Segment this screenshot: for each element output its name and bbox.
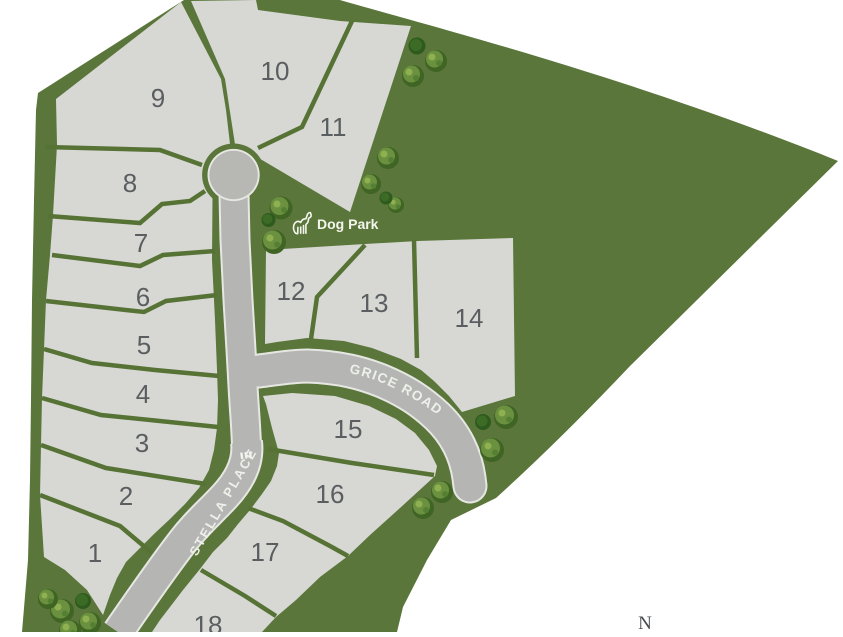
svg-text:11: 11 — [320, 112, 347, 142]
svg-text:8: 8 — [123, 168, 137, 198]
svg-text:6: 6 — [136, 282, 150, 312]
svg-text:5: 5 — [137, 330, 151, 360]
svg-text:15: 15 — [334, 414, 363, 444]
svg-text:7: 7 — [134, 228, 148, 258]
svg-text:Dog Park: Dog Park — [317, 216, 379, 232]
svg-text:13: 13 — [360, 288, 389, 318]
svg-text:10: 10 — [261, 56, 290, 86]
svg-text:9: 9 — [151, 83, 165, 113]
svg-text:12: 12 — [277, 276, 306, 306]
svg-text:14: 14 — [455, 303, 484, 333]
svg-text:18: 18 — [194, 610, 223, 632]
svg-text:2: 2 — [119, 481, 133, 511]
svg-text:17: 17 — [251, 537, 280, 567]
svg-text:1: 1 — [88, 538, 102, 568]
svg-text:N: N — [638, 613, 652, 632]
svg-text:4: 4 — [136, 379, 150, 409]
svg-text:16: 16 — [316, 479, 345, 509]
svg-text:3: 3 — [135, 428, 149, 458]
